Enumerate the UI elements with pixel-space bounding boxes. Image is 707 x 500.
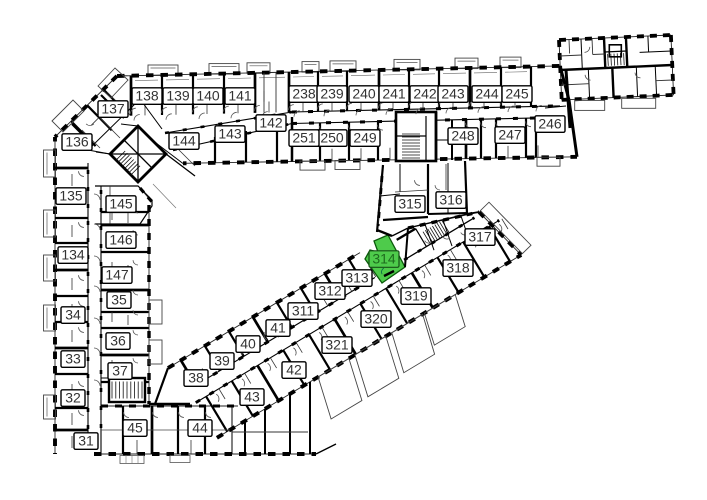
svg-text:143: 143: [218, 126, 242, 142]
svg-text:134: 134: [61, 247, 85, 263]
svg-text:34: 34: [65, 307, 81, 323]
svg-text:43: 43: [244, 389, 260, 405]
svg-text:44: 44: [192, 420, 208, 436]
svg-text:245: 245: [505, 86, 529, 102]
svg-text:250: 250: [320, 130, 344, 146]
svg-text:317: 317: [468, 229, 492, 245]
svg-text:239: 239: [320, 86, 344, 102]
svg-text:246: 246: [538, 116, 562, 132]
svg-text:321: 321: [325, 337, 349, 353]
svg-text:243: 243: [441, 86, 465, 102]
svg-text:31: 31: [78, 433, 94, 449]
svg-text:36: 36: [110, 333, 126, 349]
svg-text:312: 312: [318, 283, 342, 299]
svg-text:249: 249: [353, 130, 377, 146]
svg-text:248: 248: [451, 128, 475, 144]
svg-text:45: 45: [127, 420, 143, 436]
svg-text:241: 241: [382, 86, 406, 102]
svg-text:139: 139: [166, 88, 190, 104]
svg-text:39: 39: [214, 353, 230, 369]
svg-text:35: 35: [111, 292, 127, 308]
svg-text:40: 40: [240, 336, 256, 352]
svg-text:242: 242: [413, 86, 437, 102]
svg-text:32: 32: [65, 390, 81, 406]
svg-text:42: 42: [286, 362, 302, 378]
svg-text:314: 314: [372, 251, 396, 267]
svg-text:238: 238: [292, 86, 316, 102]
svg-text:320: 320: [364, 311, 388, 327]
svg-text:144: 144: [172, 133, 196, 149]
svg-text:318: 318: [446, 260, 470, 276]
svg-text:41: 41: [270, 320, 286, 336]
svg-text:247: 247: [498, 127, 522, 143]
svg-text:146: 146: [109, 232, 133, 248]
svg-text:140: 140: [196, 88, 220, 104]
svg-text:319: 319: [404, 288, 428, 304]
svg-text:135: 135: [59, 188, 83, 204]
svg-text:137: 137: [101, 101, 125, 117]
svg-text:33: 33: [65, 351, 81, 367]
svg-text:145: 145: [109, 196, 133, 212]
svg-text:147: 147: [105, 267, 129, 283]
svg-text:244: 244: [475, 86, 499, 102]
svg-text:136: 136: [65, 134, 89, 150]
svg-text:311: 311: [292, 303, 315, 319]
svg-text:240: 240: [352, 86, 376, 102]
svg-text:313: 313: [345, 270, 369, 286]
svg-text:315: 315: [398, 196, 422, 212]
svg-text:142: 142: [259, 115, 283, 131]
svg-text:37: 37: [112, 363, 128, 379]
svg-text:316: 316: [439, 192, 463, 208]
svg-text:141: 141: [228, 88, 252, 104]
svg-text:138: 138: [135, 88, 159, 104]
svg-text:38: 38: [188, 370, 204, 386]
svg-text:251: 251: [292, 130, 316, 146]
